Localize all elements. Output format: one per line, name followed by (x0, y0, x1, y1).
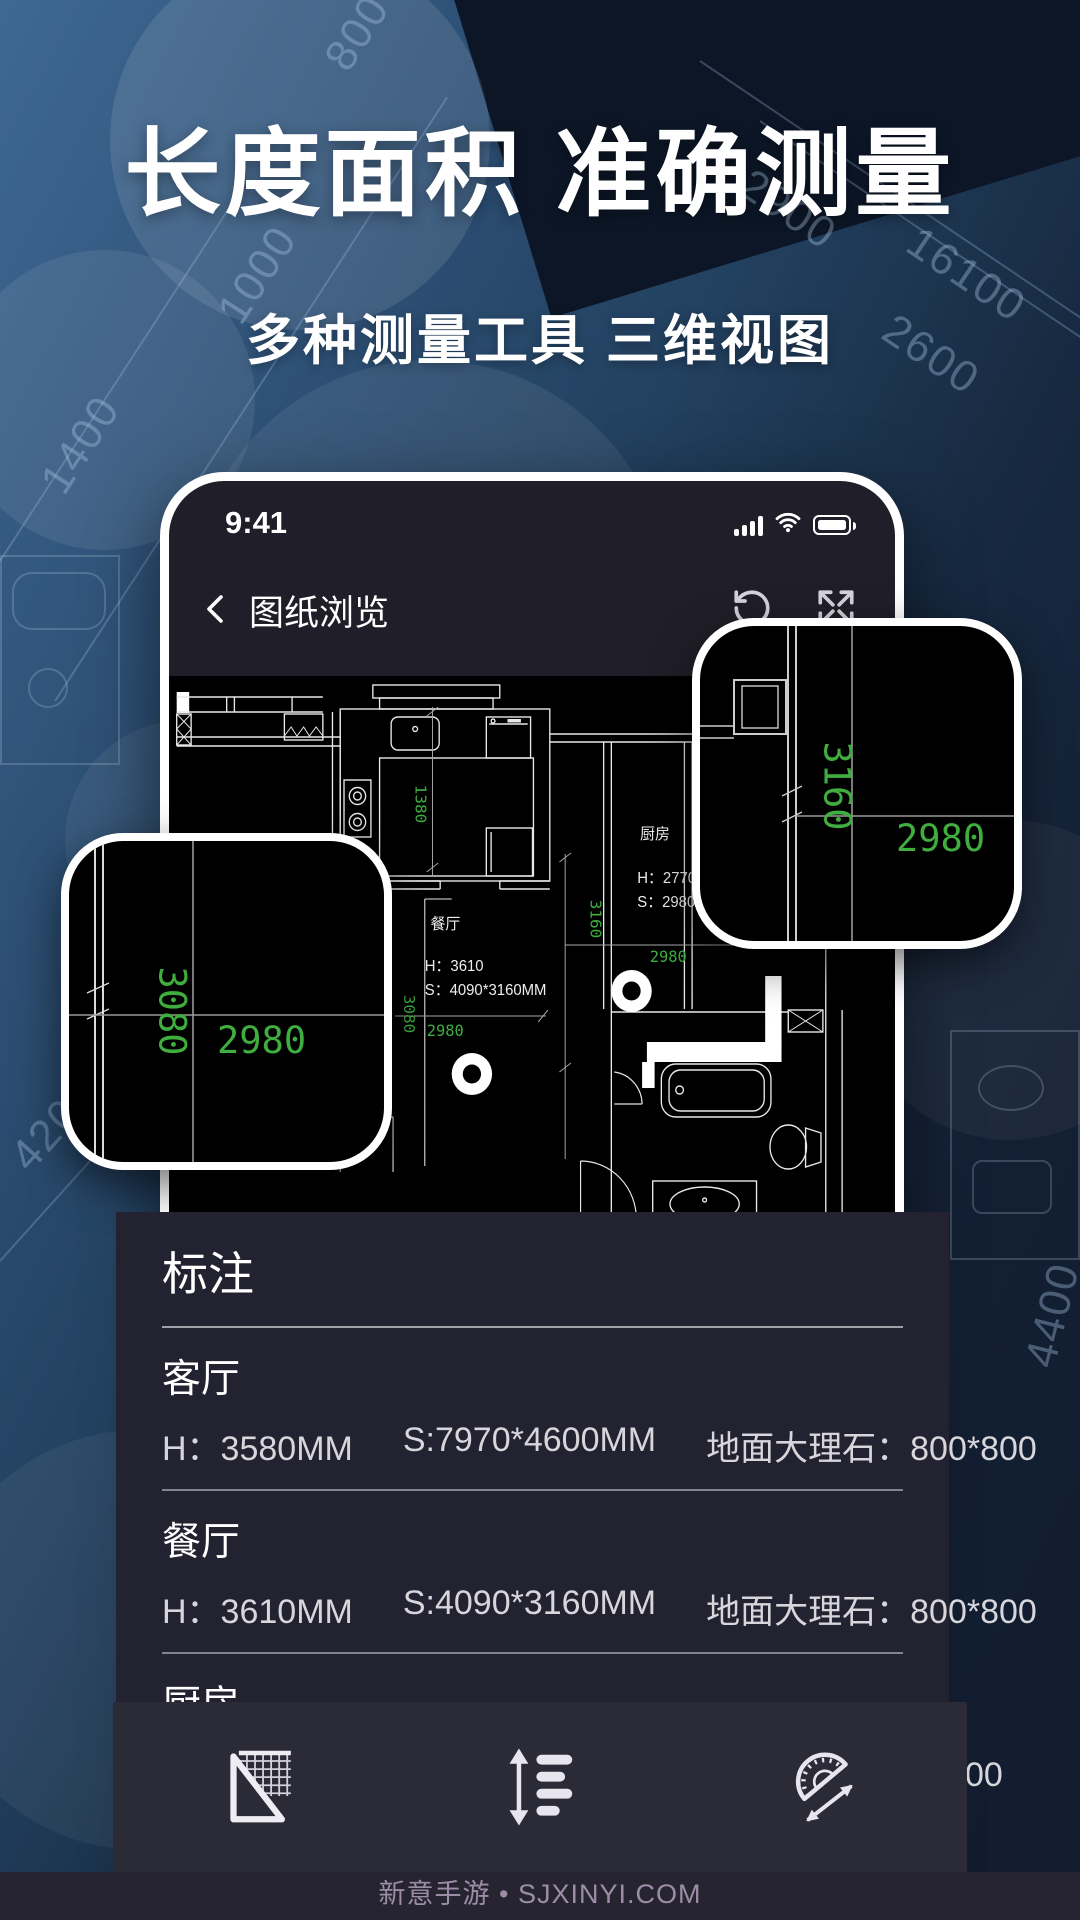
wifi-icon (774, 511, 802, 538)
back-button[interactable] (197, 589, 237, 629)
hero-title: 长度面积 准确测量 (0, 96, 1080, 235)
bg-dim-label: 800 (315, 0, 400, 80)
room-floor: 地面大理石：800*800 (706, 1584, 1037, 1633)
dim-dining-3080: 3080 (400, 995, 419, 1034)
protractor-icon[interactable] (782, 1744, 868, 1830)
bg-dim-label: 4400 (1016, 1258, 1080, 1373)
measure-toolbar (113, 1702, 967, 1872)
bg-bathtub-icon (12, 572, 106, 630)
ruler-grid-icon[interactable] (212, 1744, 298, 1830)
page-title: 图纸浏览 (249, 585, 389, 636)
dim-hall-3160: 3160 (587, 900, 606, 939)
callout-right-hdim: 2980 (896, 817, 985, 860)
room-row: 餐厅 H：3610MM S:4090*3160MM 地面大理石：800*800 (162, 1511, 903, 1654)
room-label-kitchen: 厨房 (640, 826, 670, 843)
callout-left-vdim: 3080 (151, 966, 194, 1055)
status-bar: 9:41 (169, 481, 895, 565)
room-kitchen-height: H：2770 (637, 870, 696, 887)
room-name: 客厅 (162, 1348, 903, 1404)
room-label-dining: 餐厅 (431, 916, 461, 933)
callout-left-hdim: 2980 (217, 1019, 306, 1062)
footer-text: 新意手游 • SJXINYI.COM (0, 1872, 1080, 1916)
bg-sink-icon (972, 1160, 1052, 1214)
room-floor: 地面大理石：800*800 (706, 1421, 1037, 1470)
battery-icon (813, 515, 851, 535)
room-dining-size: S：4090*3160MM (425, 982, 547, 999)
signal-icon (734, 514, 763, 536)
dim-kitchen-1380: 1380 (412, 785, 431, 824)
divider (162, 1326, 903, 1328)
room-size: S:4090*3160MM (403, 1584, 656, 1633)
callout-right-vdim: 3160 (816, 741, 859, 830)
room-height: H：3580MM (162, 1421, 353, 1470)
dim-dining-2980: 2980 (427, 1021, 464, 1040)
room-height: H：3610MM (162, 1584, 353, 1633)
line-spacing-icon[interactable] (497, 1744, 583, 1830)
room-row: 客厅 H：3580MM S:7970*4600MM 地面大理石：800*800 (162, 1348, 903, 1491)
bg-toilet-icon (978, 1065, 1044, 1111)
bg-dim-label: 1400 (31, 387, 131, 503)
divider (162, 1489, 903, 1491)
annotation-panel: 标注 客厅 H：3580MM S:7970*4600MM 地面大理石：800*8… (116, 1212, 949, 1702)
hero-subtitle: 多种测量工具 三维视图 (0, 296, 1080, 375)
panel-title: 标注 (162, 1212, 903, 1304)
bg-fixture-icon (28, 668, 68, 708)
status-time: 9:41 (225, 505, 287, 541)
page: 1400 1000 800 2900 16100 2600 4200 4400 … (0, 0, 1080, 1920)
zoom-callout-left: 3080 2980 (61, 833, 392, 1170)
room-dining-height: H：3610 (425, 958, 484, 975)
dim-hall-2980: 2980 (650, 947, 687, 966)
zoom-callout-right: 3160 2980 (692, 618, 1022, 949)
divider (162, 1652, 903, 1654)
footer-bar: 新意手游 • SJXINYI.COM (0, 1872, 1080, 1920)
room-name: 餐厅 (162, 1511, 903, 1567)
room-size: S:7970*4600MM (403, 1421, 656, 1470)
